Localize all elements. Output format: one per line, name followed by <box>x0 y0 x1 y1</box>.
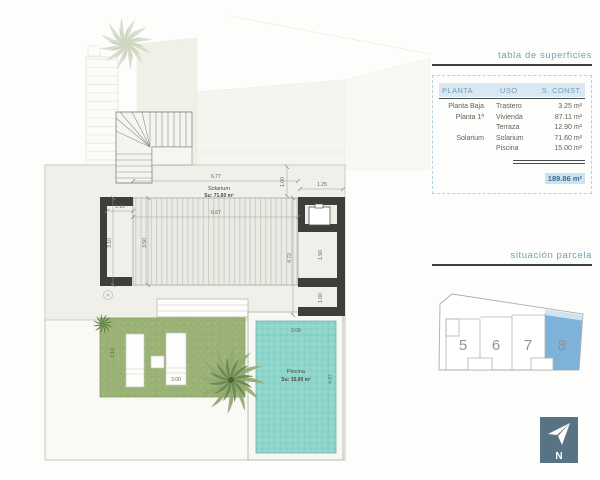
dim-label: 3.10 <box>110 348 116 358</box>
cell-uso: Piscina <box>488 144 528 155</box>
col-header-planta: PLANTA <box>442 86 488 95</box>
dim-label: 3.08 <box>291 328 301 334</box>
table-row: Solarium Solarium 71.60 m² <box>439 134 585 145</box>
total-value: 189.86 m² <box>545 173 585 184</box>
cell-planta: Planta Baja <box>442 102 488 113</box>
solarium-area-label: Su: 71.60 m² <box>204 193 234 199</box>
pool-area-label: Su: 15.00 m² <box>281 377 311 383</box>
sun-lounger <box>126 334 144 387</box>
north-arrow-icon <box>540 417 578 449</box>
cell-sconst: 12.90 m² <box>528 123 582 134</box>
dim-label: 4.87 <box>328 374 334 384</box>
plot-number-6: 6 <box>492 337 500 354</box>
dim-label: 3.10 <box>107 238 113 248</box>
rule <box>432 264 592 266</box>
total-row: 189.86 m² <box>439 168 585 186</box>
north-label: N <box>540 452 578 462</box>
surfaces-table-title: tabla de superficies <box>432 50 592 61</box>
cell-planta <box>442 123 488 134</box>
cell-planta: Solarium <box>442 134 488 145</box>
floor-plan-drawing: 6.77 1.25 1.00 6.67 1.10 3.10 3.50 4.73 … <box>0 0 440 480</box>
dim-label: 1.00 <box>318 293 324 303</box>
dim-label: 3.00 <box>171 377 181 383</box>
dim-label: 6.67 <box>211 210 221 216</box>
cell-uso: Solarium <box>488 134 528 145</box>
surfaces-table: PLANTA USO S. CONST. Planta Baja Traster… <box>432 75 592 194</box>
table-row: Planta Baja Trastero 3.25 m² <box>439 102 585 113</box>
dim-label: 6.77 <box>211 174 221 180</box>
rule <box>432 64 592 66</box>
cell-sconst: 87.11 m² <box>528 113 582 124</box>
storage-fixture <box>309 204 330 225</box>
floorplan-page: 6.77 1.25 1.00 6.67 1.10 3.10 3.50 4.73 … <box>0 0 600 480</box>
pool-label: Piscina <box>287 369 306 375</box>
dim-label: 1.25 <box>317 182 327 188</box>
cell-planta <box>442 144 488 155</box>
dim-label: 1.10 <box>115 204 125 210</box>
side-table <box>151 356 164 368</box>
cell-uso: Terraza <box>488 123 528 134</box>
plot-number-7: 7 <box>524 337 532 354</box>
rule <box>439 98 585 99</box>
solarium-label: Solarium <box>208 186 230 192</box>
exterior-stair <box>86 57 118 175</box>
north-compass: N <box>540 417 578 463</box>
dim-label: 3.50 <box>142 238 148 248</box>
table-row: Piscina 15.00 m² <box>439 144 585 155</box>
table-row: Terraza 12.90 m² <box>439 123 585 134</box>
cell-sconst: 3.25 m² <box>528 102 582 113</box>
col-header-uso: USO <box>488 86 528 95</box>
cell-planta: Planta 1ª <box>442 113 488 124</box>
plot-number-8: 8 <box>558 337 566 354</box>
cell-sconst: 71.60 m² <box>528 134 582 145</box>
parcel-section-title: situación parcela <box>432 250 592 261</box>
cell-sconst: 15.00 m² <box>528 144 582 155</box>
cell-uso: Vivienda <box>488 113 528 124</box>
dim-label: 4.73 <box>287 253 293 263</box>
total-divider <box>513 160 585 164</box>
col-header-sconst: S. CONST. <box>528 86 582 95</box>
pool <box>248 312 343 460</box>
parcel-location-map: 5 6 7 8 <box>432 288 592 388</box>
cell-uso: Trastero <box>488 102 528 113</box>
surfaces-table-header: PLANTA USO S. CONST. <box>439 83 585 97</box>
planter-bench <box>157 299 248 317</box>
dim-label: 1.90 <box>318 250 324 260</box>
plot-number-5: 5 <box>459 337 467 354</box>
dim-label: 1.00 <box>280 177 286 187</box>
table-row: Planta 1ª Vivienda 87.11 m² <box>439 113 585 124</box>
